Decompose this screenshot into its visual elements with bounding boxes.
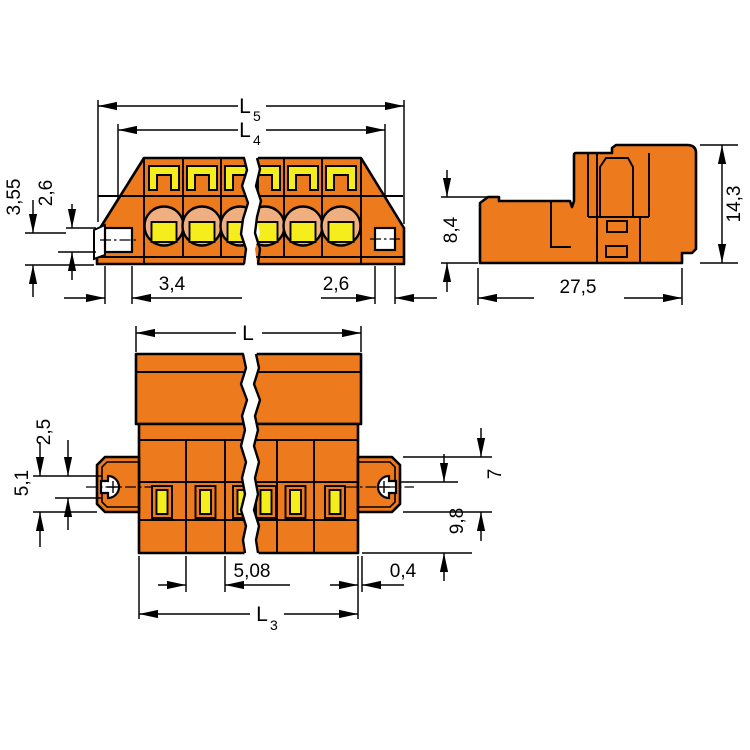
dim-label-l5-sub: 5 xyxy=(253,108,261,124)
screw-slot xyxy=(329,222,354,242)
dim-label-l3: L xyxy=(256,603,268,626)
dim-label-25: 2,5 xyxy=(34,419,55,445)
side-view: 8,4 14,3 27,5 xyxy=(441,145,745,305)
pin xyxy=(290,490,301,514)
dim-label-l5: L xyxy=(239,95,251,118)
front-view: L 5 L 4 xyxy=(4,95,437,304)
dim-label-275: 27,5 xyxy=(560,277,597,298)
pin xyxy=(200,490,211,514)
bottom-view: L xyxy=(12,322,506,633)
dim-label-508: 5,08 xyxy=(234,561,271,582)
dim-label-143: 14,3 xyxy=(724,186,745,223)
dim-label-l4: L xyxy=(239,119,251,142)
dim-label-51: 5,1 xyxy=(12,470,33,496)
screw-slot xyxy=(291,222,316,242)
screw-slot xyxy=(190,222,215,242)
dim-label-l4-sub: 4 xyxy=(253,132,261,148)
screw-slot xyxy=(152,222,177,242)
dim-label-98: 9,8 xyxy=(447,508,468,534)
connector-dimensional-drawing: L 5 L 4 xyxy=(0,0,750,750)
dim-label-84: 8,4 xyxy=(441,216,462,243)
dim-label-34: 3,4 xyxy=(159,274,186,295)
dim-label-26-right: 2,6 xyxy=(323,274,349,295)
dim-label-04: 0,4 xyxy=(390,561,417,582)
pin xyxy=(261,490,272,514)
dim-label-26-left: 2,6 xyxy=(36,180,57,206)
strain-relief-tab xyxy=(94,225,105,259)
dim-label-l3-sub: 3 xyxy=(270,617,278,633)
dim-label-355: 3,55 xyxy=(4,179,25,216)
dim-label-l: L xyxy=(242,322,254,345)
dim-label-7: 7 xyxy=(485,469,506,480)
technical-drawing-page: L 5 L 4 xyxy=(0,0,750,750)
pin xyxy=(330,490,341,514)
pin xyxy=(157,490,168,514)
